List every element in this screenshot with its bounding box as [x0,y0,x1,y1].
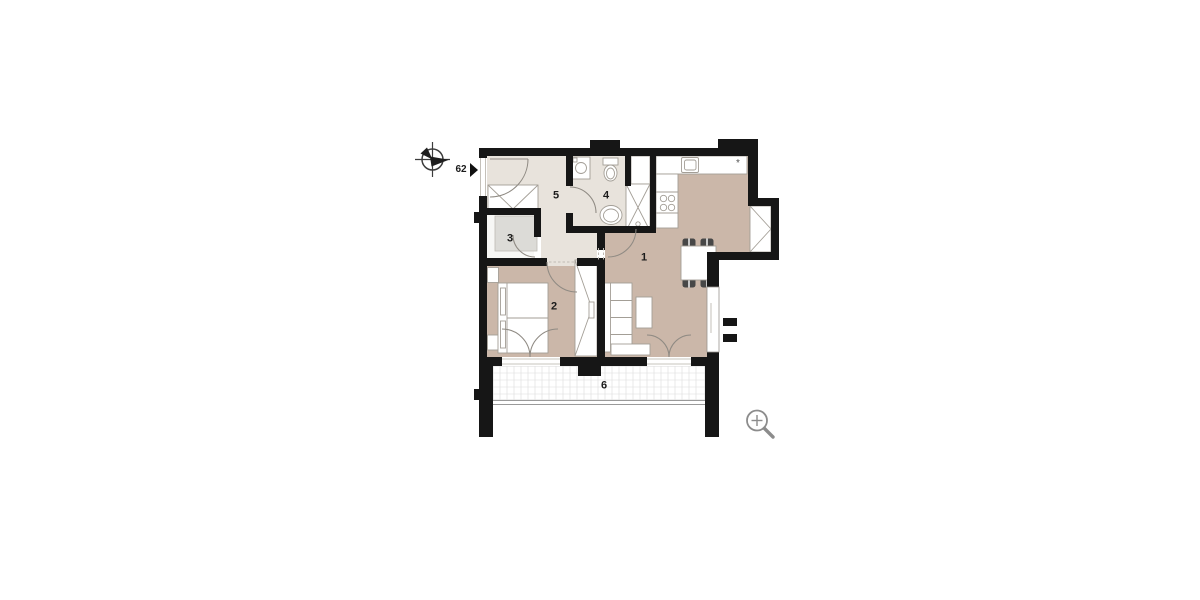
room-label-bathroom: 4 [603,191,609,202]
entrance-arrow-icon [470,163,478,177]
kitchen-appliance-symbol: * [736,159,740,169]
room-label-storage: 3 [507,234,513,245]
bedroom-wardrobe [575,260,597,356]
room-label-bedroom: 2 [551,302,557,313]
floorplan-canvas: 1 2 3 4 5 6 62 * [0,0,1200,600]
utility-shaft [750,206,771,252]
floorplan-drawing [0,0,1200,600]
coffee-table [636,297,652,328]
north-compass-icon [415,142,450,177]
unit-number-label: 62 [455,165,466,175]
room-label-balcony: 6 [601,381,607,392]
room-label-hall: 5 [553,191,559,202]
zoom-in-icon[interactable] [747,411,773,438]
room-label-living-kitchen: 1 [641,253,647,264]
